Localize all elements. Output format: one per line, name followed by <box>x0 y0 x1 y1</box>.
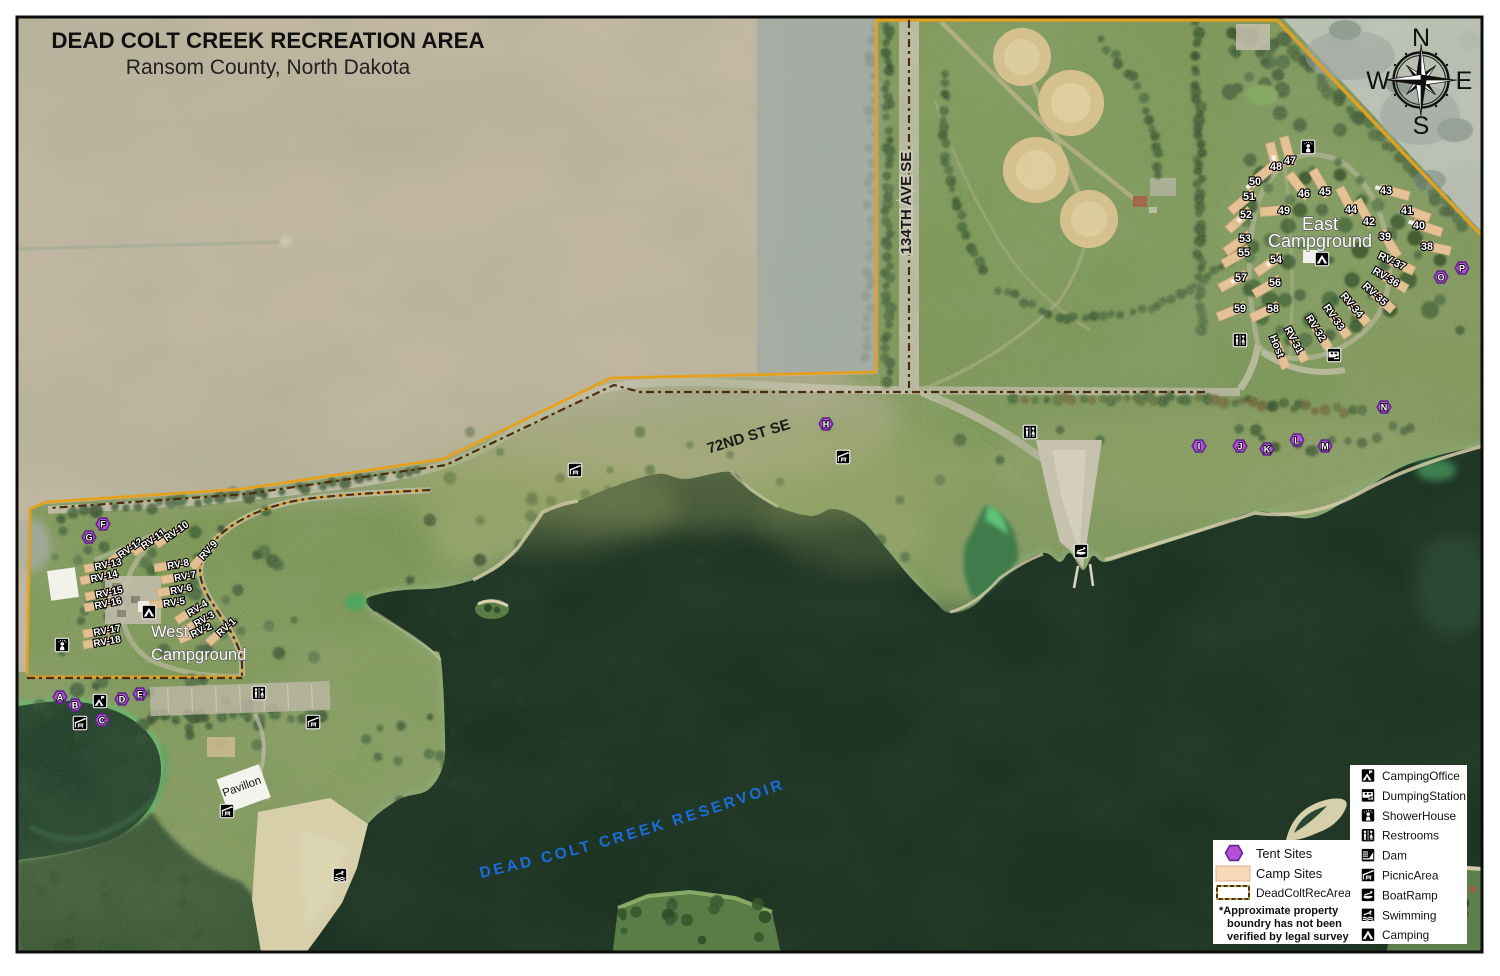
svg-text:J: J <box>1237 441 1242 451</box>
svg-text:Swimming: Swimming <box>1382 908 1436 922</box>
svg-text:Dam: Dam <box>1382 849 1407 863</box>
svg-text:53: 53 <box>1239 233 1251 245</box>
svg-text:Ransom County, North Dakota: Ransom County, North Dakota <box>126 56 411 79</box>
svg-text:N: N <box>1412 24 1430 52</box>
svg-text:41: 41 <box>1401 205 1413 217</box>
svg-text:51: 51 <box>1243 191 1255 203</box>
svg-text:38: 38 <box>1421 241 1433 253</box>
svg-text:G: G <box>85 532 92 542</box>
svg-text:47: 47 <box>1284 155 1296 167</box>
svg-text:*Approximate property: *Approximate property <box>1219 905 1339 917</box>
svg-text:43: 43 <box>1380 185 1392 197</box>
svg-text:DumpingStation: DumpingStation <box>1382 789 1466 803</box>
svg-text:I: I <box>1198 441 1201 451</box>
svg-text:45: 45 <box>1319 186 1331 198</box>
svg-text:West: West <box>151 623 189 641</box>
svg-text:Tent Sites: Tent Sites <box>1256 846 1312 861</box>
svg-text:59: 59 <box>1234 303 1246 315</box>
svg-text:46: 46 <box>1298 188 1310 200</box>
svg-text:Campground: Campground <box>1268 231 1372 251</box>
svg-text:40: 40 <box>1413 220 1425 232</box>
svg-text:Camp Sites: Camp Sites <box>1256 866 1322 881</box>
svg-text:56: 56 <box>1269 277 1281 289</box>
svg-text:Campground: Campground <box>151 646 246 664</box>
svg-text:BoatRamp: BoatRamp <box>1382 888 1438 902</box>
svg-text:M: M <box>1321 441 1329 451</box>
svg-text:E: E <box>1456 67 1473 95</box>
svg-text:50: 50 <box>1249 176 1261 188</box>
svg-text:39: 39 <box>1379 231 1391 243</box>
svg-text:B: B <box>72 700 79 710</box>
svg-text:42: 42 <box>1363 216 1375 228</box>
svg-text:49: 49 <box>1278 205 1290 217</box>
svg-text:55: 55 <box>1238 247 1250 259</box>
svg-text:W: W <box>1366 67 1390 95</box>
svg-text:54: 54 <box>1270 254 1282 266</box>
svg-text:E: E <box>137 689 143 699</box>
svg-text:134TH AVE SE: 134TH AVE SE <box>898 152 915 255</box>
svg-text:A: A <box>57 692 64 702</box>
svg-text:H: H <box>823 419 830 429</box>
svg-text:K: K <box>1264 444 1271 454</box>
svg-text:57: 57 <box>1235 272 1247 284</box>
svg-text:S: S <box>1413 112 1430 140</box>
svg-text:C: C <box>99 715 106 725</box>
svg-text:N: N <box>1381 402 1388 412</box>
svg-text:D: D <box>119 694 126 704</box>
svg-text:44: 44 <box>1345 204 1357 216</box>
svg-text:PicnicArea: PicnicArea <box>1382 869 1439 883</box>
svg-text:Camping: Camping <box>1382 928 1429 942</box>
svg-text:48: 48 <box>1270 161 1282 173</box>
svg-text:DeadColtRecArea*: DeadColtRecArea* <box>1256 886 1356 900</box>
svg-text:52: 52 <box>1240 209 1252 221</box>
svg-text:ShowerHouse: ShowerHouse <box>1382 809 1457 823</box>
svg-text:CampingOffice: CampingOffice <box>1382 769 1460 783</box>
svg-text:L: L <box>1294 435 1300 445</box>
svg-text:P: P <box>1459 263 1465 273</box>
svg-text:DEAD COLT CREEK RECREATION ARE: DEAD COLT CREEK RECREATION AREA <box>51 28 484 53</box>
svg-text:58: 58 <box>1267 303 1279 315</box>
svg-text:boundry has not been: boundry has not been <box>1227 918 1342 930</box>
svg-text:O: O <box>1437 272 1444 282</box>
svg-text:verified by legal survey: verified by legal survey <box>1227 931 1350 943</box>
svg-text:Restrooms: Restrooms <box>1382 829 1439 843</box>
svg-text:F: F <box>100 519 106 529</box>
